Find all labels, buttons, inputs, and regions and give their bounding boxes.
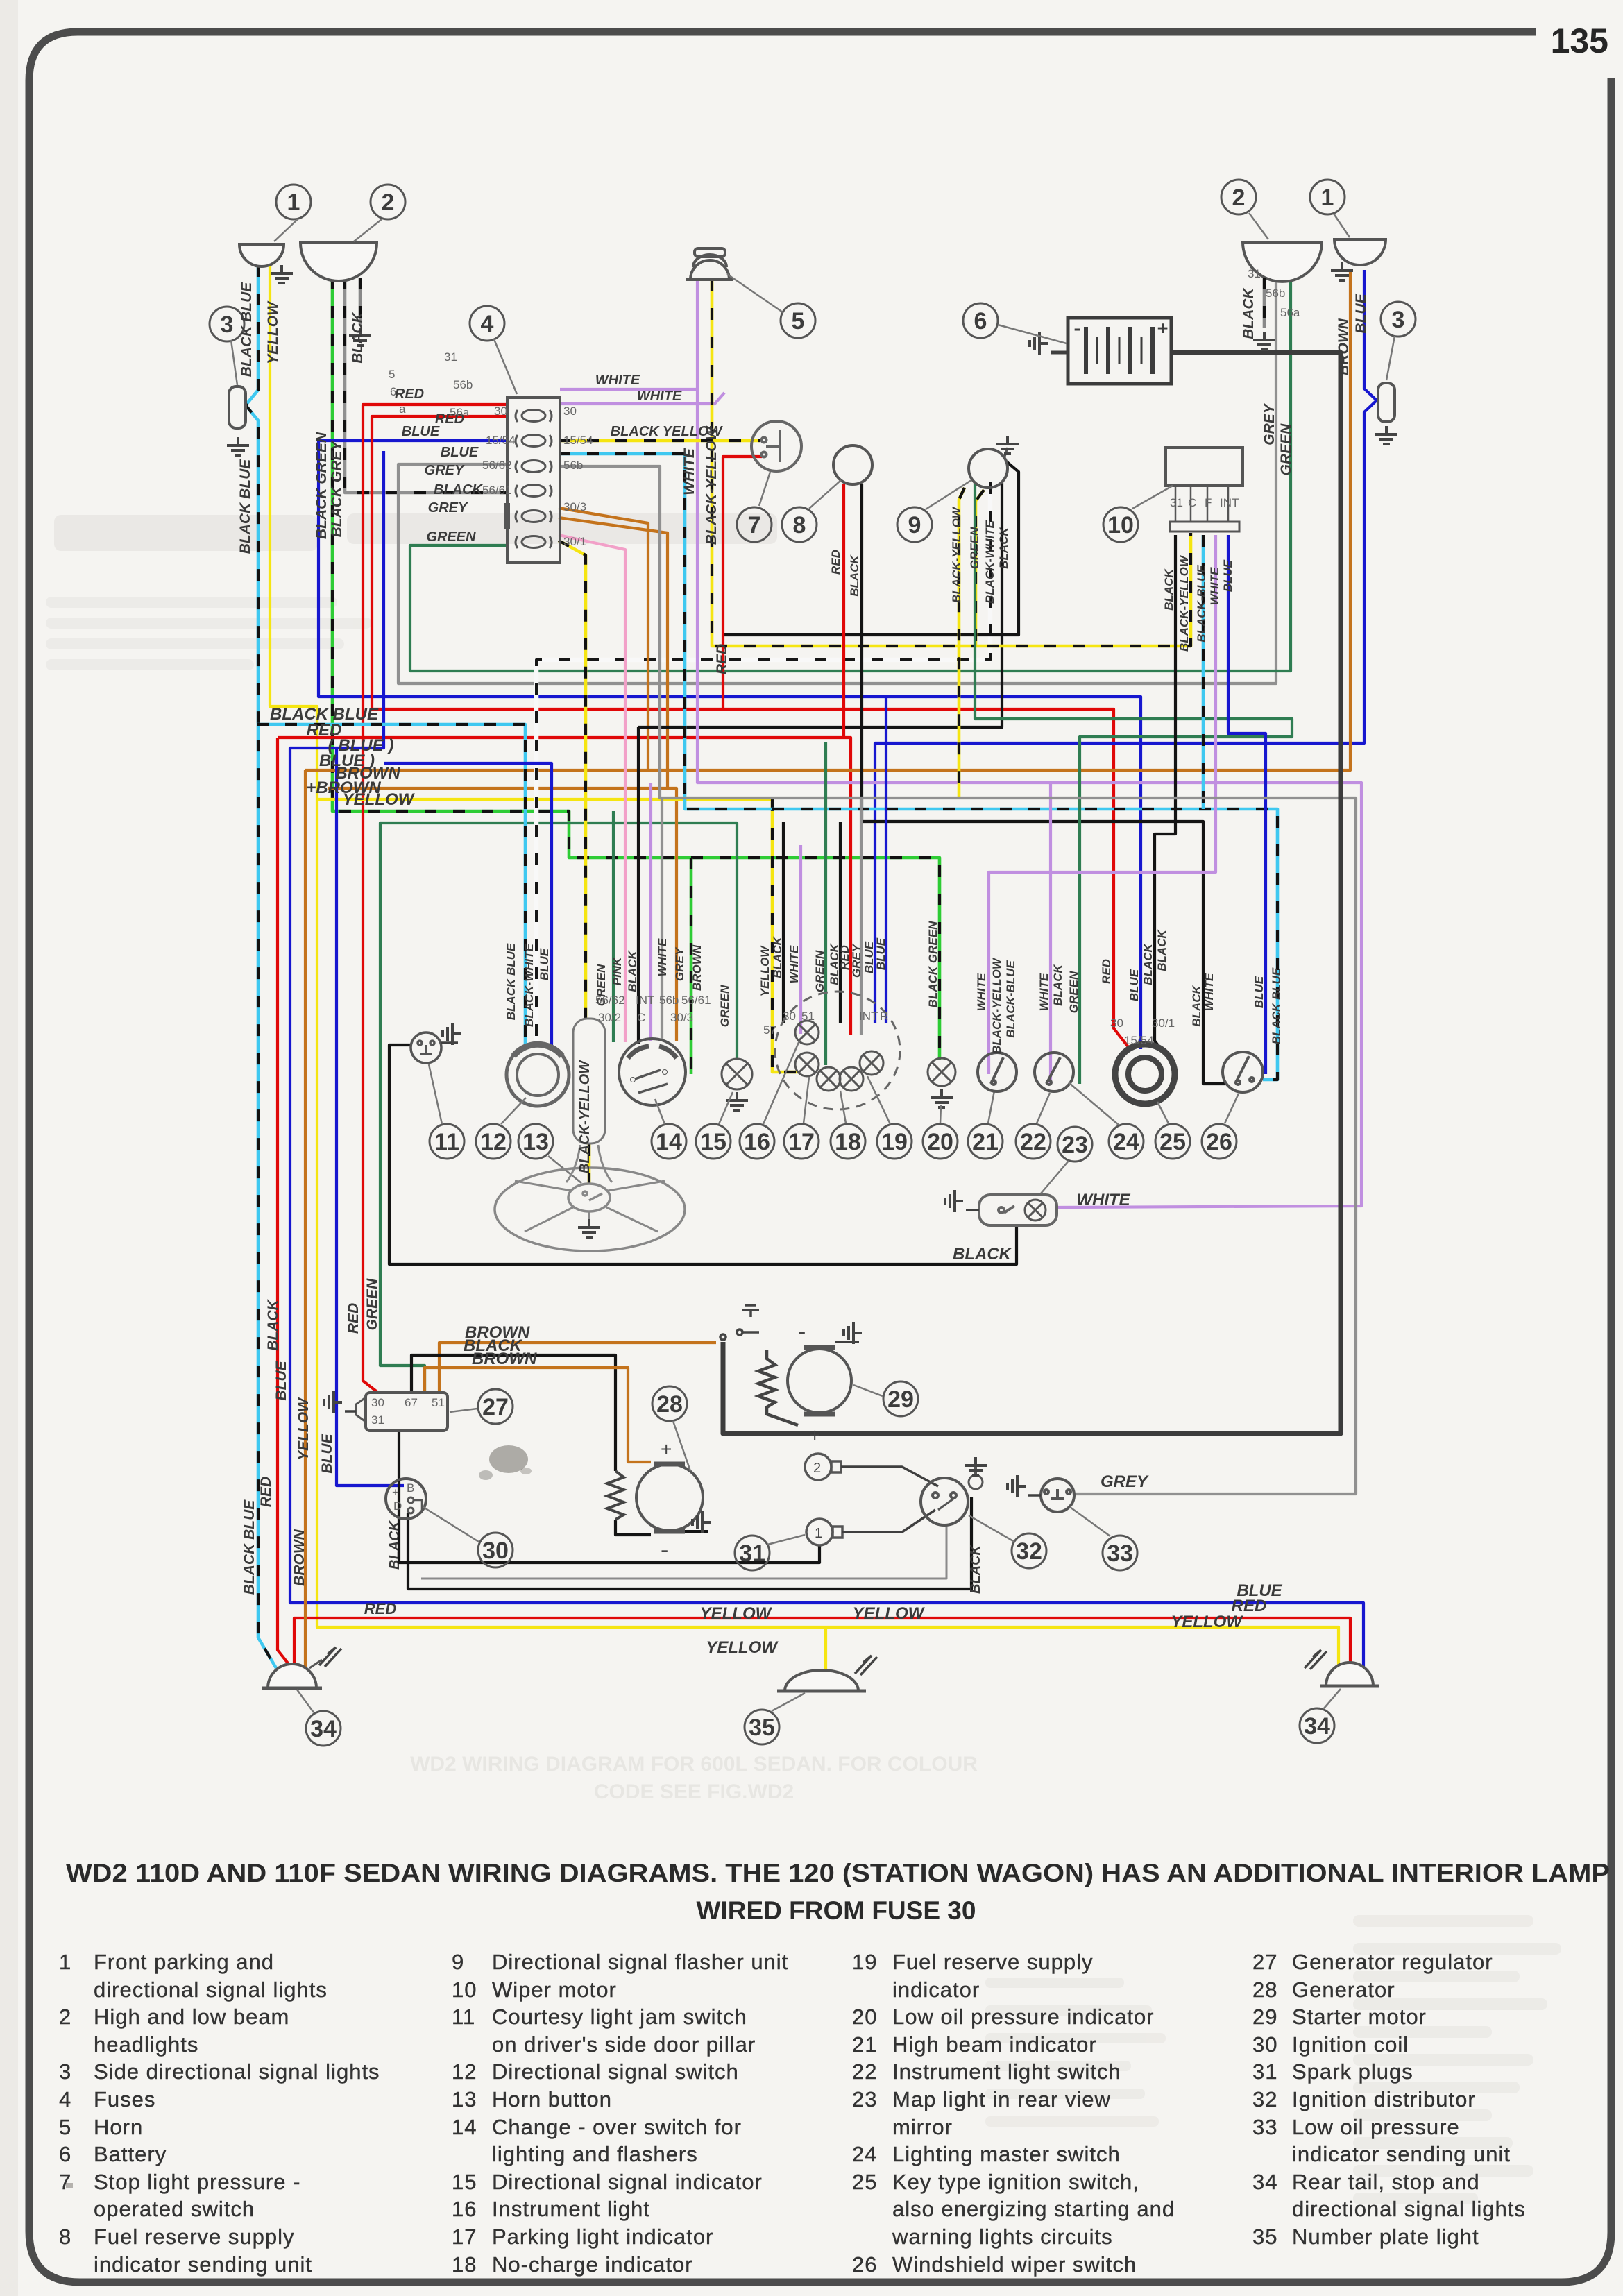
svg-text:2: 2 — [1232, 185, 1246, 211]
svg-text:a: a — [399, 402, 406, 416]
svg-text:5: 5 — [792, 308, 805, 334]
svg-text:31: 31 — [739, 1540, 765, 1567]
svg-text:BLUE: BLUE — [1128, 969, 1141, 1001]
svg-text:INT: INT — [1220, 496, 1239, 509]
svg-text:11: 11 — [434, 1129, 459, 1155]
svg-text:25: 25 — [1159, 1129, 1186, 1155]
svg-text:67: 67 — [405, 1396, 418, 1409]
svg-text:BROWN: BROWN — [472, 1350, 537, 1368]
svg-text:27: 27 — [482, 1394, 509, 1420]
svg-text:2: 2 — [382, 189, 395, 216]
svg-text:56b: 56b — [1266, 287, 1285, 300]
svg-text:Directional signal flasher uni: Directional signal flasher unit — [492, 1950, 788, 1974]
svg-text:F: F — [1205, 496, 1212, 509]
svg-text:WD2 WIRING DIAGRAM FOR 600L SE: WD2 WIRING DIAGRAM FOR 600L SEDAN. FOR C… — [410, 1753, 978, 1776]
svg-text:30/3: 30/3 — [670, 1011, 693, 1024]
svg-text:BROWN: BROWN — [1336, 318, 1352, 375]
svg-text:WHITE: WHITE — [637, 389, 682, 404]
svg-text:BLACK-WHITE: BLACK-WHITE — [983, 520, 996, 604]
svg-text:31: 31 — [444, 350, 457, 364]
svg-text:13: 13 — [522, 1129, 549, 1155]
svg-text:RED: RED — [714, 644, 730, 674]
svg-text:17: 17 — [452, 2225, 477, 2249]
svg-text:RED: RED — [395, 386, 424, 402]
svg-text:Lighting master switch: Lighting master switch — [892, 2142, 1121, 2166]
svg-text:GREY: GREY — [425, 463, 465, 478]
svg-text:4: 4 — [59, 2087, 71, 2111]
svg-text:BLACK BLUE: BLACK BLUE — [239, 282, 255, 377]
svg-text:WHITE: WHITE — [1208, 567, 1221, 605]
svg-text:+: + — [392, 1486, 399, 1499]
svg-text:24: 24 — [1113, 1129, 1139, 1155]
svg-text:Fuel reserve supply: Fuel reserve supply — [892, 1950, 1094, 1974]
svg-text:56b: 56b — [453, 378, 473, 391]
svg-text:21: 21 — [852, 2032, 877, 2057]
svg-text:RED: RED — [364, 1600, 397, 1617]
svg-text:35: 35 — [749, 1715, 775, 1741]
svg-text:Generator regulator: Generator regulator — [1292, 1950, 1493, 1974]
svg-text:3: 3 — [59, 2059, 71, 2084]
svg-text:Fuel reserve supply: Fuel reserve supply — [94, 2225, 295, 2249]
svg-text:Directional signal switch: Directional signal switch — [492, 2059, 739, 2084]
svg-text:26: 26 — [852, 2252, 877, 2277]
svg-text:WHITE: WHITE — [975, 973, 988, 1011]
svg-text:30: 30 — [482, 1538, 509, 1564]
svg-text:No-charge indicator: No-charge indicator — [492, 2252, 693, 2277]
svg-text:+: + — [1157, 318, 1168, 339]
svg-text:on driver's side door pillar: on driver's side door pillar — [492, 2032, 756, 2057]
svg-text:BLACK-YELLOW: BLACK-YELLOW — [577, 1060, 593, 1173]
svg-text:RED: RED — [1100, 959, 1113, 984]
svg-text:56b: 56b — [659, 994, 679, 1007]
svg-text:indicator: indicator — [892, 1978, 980, 2002]
svg-text:135: 135 — [1551, 22, 1608, 60]
svg-text:18: 18 — [452, 2252, 477, 2277]
svg-text:Windshield wiper switch: Windshield wiper switch — [892, 2252, 1137, 2277]
svg-text:mirror: mirror — [892, 2115, 953, 2139]
svg-text:C: C — [637, 1011, 645, 1024]
svg-text:Low oil pressure: Low oil pressure — [1292, 2115, 1460, 2139]
svg-text:GREEN: GREEN — [1067, 971, 1080, 1013]
svg-text:8: 8 — [793, 512, 806, 538]
svg-text:25: 25 — [852, 2170, 877, 2194]
svg-text:6: 6 — [59, 2142, 71, 2166]
svg-text:BROWN: BROWN — [291, 1529, 307, 1585]
svg-text:3: 3 — [1392, 307, 1405, 333]
svg-text:operated switch: operated switch — [94, 2197, 255, 2221]
svg-text:warning lights circuits: warning lights circuits — [892, 2225, 1113, 2249]
svg-text:YELLOW: YELLOW — [343, 790, 416, 809]
svg-text:GREEN: GREEN — [718, 985, 731, 1027]
svg-text:56/62: 56/62 — [595, 994, 625, 1007]
svg-text:WHITE: WHITE — [1037, 973, 1051, 1011]
svg-text:R: R — [880, 1010, 888, 1023]
svg-text:1: 1 — [815, 1526, 822, 1541]
svg-text:Map light in rear view: Map light in rear view — [892, 2087, 1111, 2111]
svg-text:2: 2 — [59, 2005, 71, 2029]
svg-text:-: - — [798, 1318, 806, 1345]
svg-text:GREEN: GREEN — [426, 529, 476, 545]
svg-text:BLUE: BLUE — [273, 1360, 289, 1400]
svg-text:4: 4 — [481, 311, 494, 337]
svg-text:WHITE: WHITE — [595, 373, 640, 388]
svg-text:BLACK-YELLOW: BLACK-YELLOW — [950, 506, 963, 603]
svg-text:Change - over switch for: Change - over switch for — [492, 2115, 742, 2139]
svg-text:indicator sending unit: indicator sending unit — [1292, 2142, 1511, 2166]
svg-text:56a: 56a — [1280, 306, 1300, 319]
svg-text:BLACK: BLACK — [997, 527, 1010, 569]
svg-text:33: 33 — [1107, 1540, 1133, 1567]
svg-text:30: 30 — [563, 405, 577, 418]
svg-text:1: 1 — [1321, 185, 1334, 211]
svg-text:15: 15 — [700, 1129, 726, 1155]
svg-text:C: C — [1188, 496, 1196, 509]
svg-text:6: 6 — [974, 308, 987, 334]
svg-text:57: 57 — [763, 1023, 776, 1037]
svg-text:+: + — [661, 1438, 672, 1460]
svg-text:GREY: GREY — [1261, 402, 1277, 445]
svg-text:Side directional signal lights: Side directional signal lights — [94, 2059, 380, 2084]
svg-text:B: B — [407, 1481, 414, 1495]
svg-text:17: 17 — [788, 1129, 815, 1155]
svg-text:8: 8 — [59, 2225, 71, 2249]
svg-text:5: 5 — [59, 2115, 71, 2139]
svg-text:56a: 56a — [450, 406, 470, 419]
svg-text:Parking light indicator: Parking light indicator — [492, 2225, 713, 2249]
svg-text:BLUE: BLUE — [402, 424, 440, 439]
svg-text:YELLOW: YELLOW — [853, 1604, 926, 1623]
svg-text:BLACK-YELLOW: BLACK-YELLOW — [990, 957, 1003, 1054]
svg-text:D: D — [393, 1499, 402, 1513]
svg-text:Front parking and: Front parking and — [94, 1950, 274, 1974]
svg-text:56b: 56b — [563, 459, 583, 472]
svg-text:BLACK-BLUE: BLACK-BLUE — [1195, 565, 1208, 643]
svg-text:BLACK BLUE: BLACK BLUE — [1270, 967, 1283, 1044]
svg-text:10: 10 — [452, 1978, 477, 2002]
svg-text:Starter motor: Starter motor — [1292, 2005, 1427, 2029]
svg-text:1: 1 — [287, 189, 300, 216]
svg-text:31: 31 — [1170, 496, 1183, 509]
svg-text:15/54: 15/54 — [1124, 1034, 1154, 1047]
svg-text:32: 32 — [1252, 2087, 1277, 2111]
svg-text:BROWN: BROWN — [690, 944, 704, 991]
svg-text:29: 29 — [1252, 2005, 1277, 2029]
svg-text:BLUE: BLUE — [441, 445, 479, 460]
svg-text:BLACK BLUE: BLACK BLUE — [504, 943, 518, 1020]
svg-text:INT: INT — [859, 1010, 878, 1023]
svg-text:16: 16 — [452, 2197, 477, 2221]
svg-text:BLUE: BLUE — [1353, 293, 1369, 333]
svg-text:RED: RED — [258, 1477, 274, 1507]
svg-text:High beam indicator: High beam indicator — [892, 2032, 1097, 2057]
svg-text:24: 24 — [852, 2142, 877, 2166]
svg-text:BLACK BLUE: BLACK BLUE — [241, 1499, 257, 1595]
svg-text:BLACK-YELLOW: BLACK-YELLOW — [704, 425, 720, 545]
svg-text:BLACK: BLACK — [953, 1245, 1012, 1264]
svg-text:also energizing starting and: also energizing starting and — [892, 2197, 1175, 2221]
svg-text:32: 32 — [1016, 1538, 1042, 1565]
svg-text:14: 14 — [452, 2115, 477, 2139]
svg-text:YELLOW: YELLOW — [265, 300, 281, 364]
svg-text:GREY: GREY — [673, 946, 686, 981]
svg-text:30: 30 — [371, 1396, 384, 1409]
svg-text:BLACK BLUE: BLACK BLUE — [237, 459, 253, 554]
svg-text:BLACK: BLACK — [1155, 929, 1169, 971]
svg-text:BLUE: BLUE — [319, 1433, 335, 1473]
svg-text:30: 30 — [494, 405, 507, 418]
svg-text:34: 34 — [1252, 2170, 1277, 2194]
svg-text:+: + — [809, 1425, 820, 1446]
svg-text:BLACK: BLACK — [626, 950, 639, 992]
svg-text:BLACK: BLACK — [848, 554, 861, 597]
svg-text:19: 19 — [852, 1950, 877, 1974]
svg-text:GREEN: GREEN — [813, 950, 826, 992]
svg-text:GREY: GREY — [428, 500, 468, 516]
svg-text:3: 3 — [221, 312, 234, 338]
svg-text:BLUE: BLUE — [538, 948, 551, 980]
svg-text:BLACK: BLACK — [1241, 287, 1257, 339]
svg-text:Battery: Battery — [94, 2142, 167, 2166]
svg-text:INT: INT — [636, 994, 654, 1007]
svg-text:13: 13 — [452, 2087, 477, 2111]
svg-text:BLACK GREEN: BLACK GREEN — [314, 432, 330, 539]
svg-text:lighting and flashers: lighting and flashers — [492, 2142, 698, 2166]
svg-text:Number plate light: Number plate light — [1292, 2225, 1479, 2249]
svg-text:GREY: GREY — [850, 943, 863, 978]
svg-text:31: 31 — [371, 1413, 384, 1427]
svg-text:56/61: 56/61 — [681, 994, 711, 1007]
svg-text:YELLOW: YELLOW — [296, 1397, 312, 1461]
svg-text:BLUE: BLUE — [874, 937, 887, 970]
svg-text:30: 30 — [1110, 1017, 1123, 1030]
svg-text:34: 34 — [1304, 1713, 1330, 1740]
svg-text:15/54: 15/54 — [563, 434, 593, 447]
svg-text:-: - — [661, 1537, 668, 1563]
svg-text:Instrument light switch: Instrument light switch — [892, 2059, 1121, 2084]
svg-text:Generator: Generator — [1292, 1978, 1395, 2002]
svg-text:BLACK-BLUE: BLACK-BLUE — [1004, 960, 1017, 1038]
svg-text:28: 28 — [1252, 1978, 1277, 2002]
svg-text:1: 1 — [59, 1950, 71, 1974]
svg-text:GREEN: GREEN — [364, 1278, 380, 1331]
svg-text:Stop light pressure -: Stop light pressure - — [94, 2170, 300, 2194]
svg-text:29: 29 — [887, 1386, 914, 1413]
svg-text:33: 33 — [1252, 2115, 1277, 2139]
svg-text:Directional signal indicator: Directional signal indicator — [492, 2170, 763, 2194]
svg-text:directional signal lights: directional signal lights — [1292, 2197, 1526, 2221]
svg-text:WHITE: WHITE — [788, 945, 801, 983]
svg-text:14: 14 — [656, 1129, 682, 1155]
svg-text:WHITE: WHITE — [656, 938, 669, 976]
svg-text:30/1: 30/1 — [563, 535, 586, 548]
svg-text:indicator sending unit: indicator sending unit — [94, 2252, 312, 2277]
svg-text:BLACK-YELLOW: BLACK-YELLOW — [1178, 554, 1191, 652]
svg-text:27: 27 — [1252, 1950, 1277, 1974]
svg-text:30/1: 30/1 — [1152, 1017, 1175, 1030]
svg-text:Courtesy light jam switch: Courtesy light jam switch — [492, 2005, 747, 2029]
svg-text:12: 12 — [480, 1129, 507, 1155]
svg-text:BLACK: BLACK — [1051, 964, 1064, 1006]
svg-text:Horn: Horn — [94, 2115, 143, 2139]
svg-text:BLACK: BLACK — [1141, 943, 1155, 985]
svg-text:Low oil pressure indicator: Low oil pressure indicator — [892, 2005, 1155, 2029]
svg-text:19: 19 — [881, 1129, 908, 1155]
svg-text:RED: RED — [829, 550, 842, 575]
svg-text:7: 7 — [748, 512, 761, 538]
svg-text:21: 21 — [972, 1129, 999, 1155]
svg-text:2: 2 — [813, 1461, 821, 1476]
svg-text:9: 9 — [908, 512, 921, 538]
svg-text:BLUE: BLUE — [1221, 559, 1234, 592]
svg-text:9: 9 — [452, 1950, 464, 1974]
svg-text:BLACK: BLACK — [968, 1544, 983, 1594]
svg-text:BLACK GREEN: BLACK GREEN — [926, 921, 940, 1007]
svg-text:16: 16 — [744, 1129, 770, 1155]
svg-text:WHITE: WHITE — [1076, 1191, 1130, 1209]
svg-text:CODE SEE FIG.WD2: CODE SEE FIG.WD2 — [594, 1780, 794, 1803]
svg-text:BLACK: BLACK — [434, 482, 484, 498]
svg-text:22: 22 — [1020, 1129, 1046, 1155]
svg-text:15/54: 15/54 — [486, 434, 516, 447]
svg-text:YELLOW: YELLOW — [1171, 1613, 1243, 1631]
svg-text:directional signal lights: directional signal lights — [94, 1978, 328, 2002]
svg-text:7: 7 — [59, 2170, 71, 2194]
svg-text:GREEN: GREEN — [1278, 423, 1294, 476]
svg-text:YELLOW: YELLOW — [700, 1604, 773, 1623]
svg-text:10: 10 — [1107, 512, 1134, 538]
svg-text:56/61: 56/61 — [482, 484, 512, 497]
svg-text:31: 31 — [1252, 2059, 1277, 2084]
svg-text:BLACK: BLACK — [1162, 568, 1175, 611]
svg-text:56/62: 56/62 — [482, 459, 512, 472]
svg-text:20: 20 — [927, 1129, 953, 1155]
svg-text:BLACK: BLACK — [265, 1298, 281, 1350]
svg-text:20: 20 — [852, 2005, 877, 2029]
svg-text:Spark plugs: Spark plugs — [1292, 2059, 1413, 2084]
svg-text:12: 12 — [452, 2059, 477, 2084]
svg-text:6: 6 — [390, 385, 396, 398]
svg-text:31: 31 — [1248, 267, 1261, 280]
svg-text:WD2 110D AND 110F SEDAN WIRING: WD2 110D AND 110F SEDAN WIRING DIAGRAMS.… — [66, 1859, 1610, 1887]
svg-text:BLACK GREY: BLACK GREY — [329, 440, 345, 538]
svg-text:23: 23 — [1062, 1132, 1088, 1158]
svg-text:GREEN: GREEN — [968, 527, 981, 569]
svg-text:Instrument light: Instrument light — [492, 2197, 650, 2221]
svg-text:BLACK: BLACK — [350, 311, 366, 363]
svg-text:BLACK-WHITE: BLACK-WHITE — [522, 943, 536, 1027]
svg-text:Wiper motor: Wiper motor — [492, 1978, 617, 2002]
svg-text:BLACK: BLACK — [771, 936, 784, 978]
svg-text:WHITE: WHITE — [1203, 973, 1216, 1011]
svg-text:WIRED FROM FUSE 30: WIRED FROM FUSE 30 — [697, 1896, 976, 1925]
svg-text:RED: RED — [346, 1303, 362, 1334]
svg-text:BLUE: BLUE — [1252, 976, 1266, 1008]
svg-text:26: 26 — [1206, 1129, 1232, 1155]
svg-text:BLACK: BLACK — [1190, 985, 1203, 1027]
svg-text:-: - — [1074, 318, 1080, 339]
svg-text:YELLOW: YELLOW — [706, 1638, 779, 1657]
svg-text:34: 34 — [310, 1716, 337, 1742]
svg-text:22: 22 — [852, 2059, 877, 2084]
svg-text:30: 30 — [1252, 2032, 1277, 2057]
svg-text:30/2: 30/2 — [598, 1011, 621, 1024]
svg-text:51: 51 — [432, 1396, 445, 1409]
svg-text:15: 15 — [452, 2170, 477, 2194]
svg-text:Horn button: Horn button — [492, 2087, 612, 2111]
svg-text:Key type ignition switch,: Key type ignition switch, — [892, 2170, 1139, 2194]
svg-text:Ignition distributor: Ignition distributor — [1292, 2087, 1476, 2111]
svg-text:WHITE: WHITE — [681, 448, 697, 495]
svg-text:5: 5 — [389, 368, 395, 381]
svg-text:GREY: GREY — [1101, 1472, 1149, 1491]
svg-text:Ignition coil: Ignition coil — [1292, 2032, 1409, 2057]
svg-text:23: 23 — [852, 2087, 877, 2111]
svg-text:11: 11 — [452, 2005, 475, 2029]
svg-text:35: 35 — [1252, 2225, 1277, 2249]
svg-text:51: 51 — [801, 1010, 815, 1023]
svg-text:High and low beam: High and low beam — [94, 2005, 289, 2029]
svg-text:18: 18 — [835, 1129, 861, 1155]
svg-text:30: 30 — [783, 1010, 796, 1023]
svg-text:Rear tail, stop and: Rear tail, stop and — [1292, 2170, 1480, 2194]
svg-text:Fuses: Fuses — [94, 2087, 155, 2111]
svg-text:PINK: PINK — [611, 956, 624, 985]
svg-text:28: 28 — [656, 1391, 683, 1418]
svg-text:30/3: 30/3 — [563, 500, 586, 513]
svg-text:YELLOW: YELLOW — [758, 945, 772, 997]
svg-text:headlights: headlights — [94, 2032, 198, 2057]
